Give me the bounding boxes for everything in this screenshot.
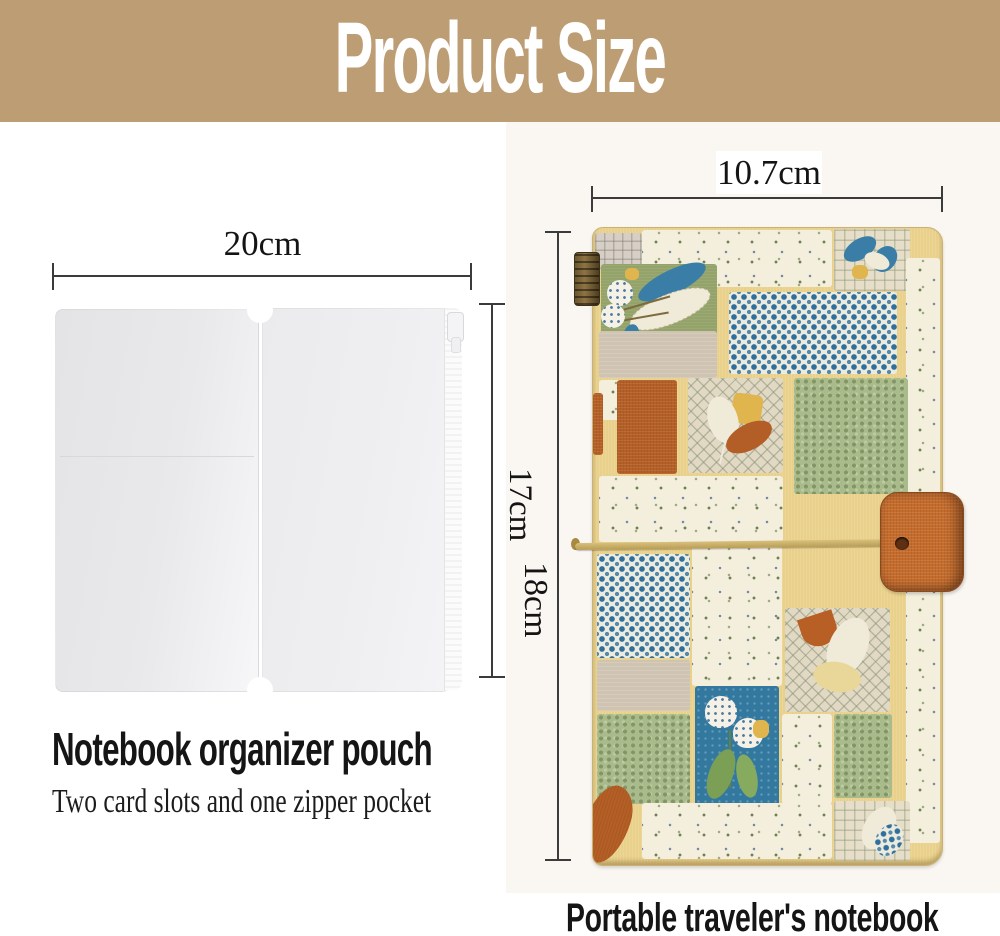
page-title: Product Size bbox=[335, 8, 665, 114]
notebook-title: Portable traveler's notebook bbox=[566, 898, 938, 936]
leaf-shape bbox=[701, 745, 741, 802]
pouch-left-panel bbox=[55, 309, 259, 692]
pouch-width-label: 20cm bbox=[53, 224, 472, 264]
leaf-shape bbox=[733, 752, 762, 799]
pouch-height-dimension-line bbox=[491, 304, 493, 678]
patch-trellis-leaf bbox=[785, 608, 890, 712]
patch-floral-middle-band bbox=[599, 476, 783, 542]
notebook-width-cap-left bbox=[591, 186, 593, 212]
flower-accent bbox=[852, 265, 868, 279]
pouch-zipper-pocket-panel bbox=[262, 308, 450, 692]
pouch-top-notch bbox=[247, 297, 273, 323]
notebook-width-dimension-line bbox=[592, 197, 942, 199]
pouch-width-dimension-line bbox=[53, 275, 472, 277]
notebook-width-cap-right bbox=[941, 186, 943, 212]
patch-floral-center bbox=[692, 546, 782, 686]
product-size-infographic: Product Size 20cm 17cm Notebook organize… bbox=[0, 0, 1000, 936]
pouch-width-cap-right bbox=[470, 263, 472, 290]
patch-plaid-bottom-right bbox=[834, 801, 910, 861]
patch-blue-print-top bbox=[729, 292, 897, 374]
pouch-height-cap-top bbox=[479, 303, 505, 305]
flower-shape bbox=[601, 304, 625, 328]
pouch-height-cap-bottom bbox=[479, 676, 505, 678]
patch-trellis-tulip bbox=[688, 378, 783, 473]
pouch-bottom-notch bbox=[247, 677, 273, 703]
leather-clasp bbox=[880, 492, 964, 592]
pouch-subtitle: Two card slots and one zipper pocket bbox=[52, 785, 431, 819]
flower-shape bbox=[607, 280, 633, 306]
notebook-height-label: 18cm bbox=[516, 562, 554, 638]
clasp-cord-hole bbox=[895, 537, 909, 550]
patch-orange-left bbox=[617, 380, 677, 474]
brass-clasp bbox=[574, 252, 600, 306]
pouch-title: Notebook organizer pouch bbox=[52, 726, 432, 772]
pouch-zipper-tape bbox=[444, 308, 462, 690]
notebook-height-dimension-line bbox=[557, 232, 559, 861]
patch-floral-bottom-band bbox=[642, 803, 832, 859]
notebook-height-cap-bottom bbox=[545, 859, 571, 861]
notebook-width-label: 10.7cm bbox=[717, 153, 821, 193]
patch-tan-left bbox=[599, 331, 717, 378]
pouch-card-slot-crease bbox=[60, 456, 254, 457]
title-banner: Product Size bbox=[0, 0, 1000, 122]
patch-plaid-top-right bbox=[834, 229, 910, 291]
patch-floral-bottom-gap bbox=[782, 714, 832, 804]
pouch-width-cap-left bbox=[52, 263, 54, 290]
tulip-accent bbox=[753, 720, 769, 738]
notebook-width-label-box: 10.7cm bbox=[716, 151, 822, 194]
tulip-flower-shape bbox=[705, 696, 737, 728]
patch-blue-print-bottom bbox=[597, 554, 690, 658]
zipper-pull-icon bbox=[447, 312, 464, 342]
patch-orange-edge bbox=[593, 393, 603, 455]
patch-sage-bottom-right bbox=[834, 714, 892, 798]
patch-teal-tulips bbox=[695, 686, 779, 822]
patch-sage-middle bbox=[794, 378, 908, 494]
pouch-height-label: 17cm bbox=[501, 468, 538, 541]
patch-tan-bottom-left bbox=[597, 660, 690, 711]
flower-accent bbox=[625, 268, 639, 280]
notebook-height-cap-top bbox=[545, 231, 571, 233]
